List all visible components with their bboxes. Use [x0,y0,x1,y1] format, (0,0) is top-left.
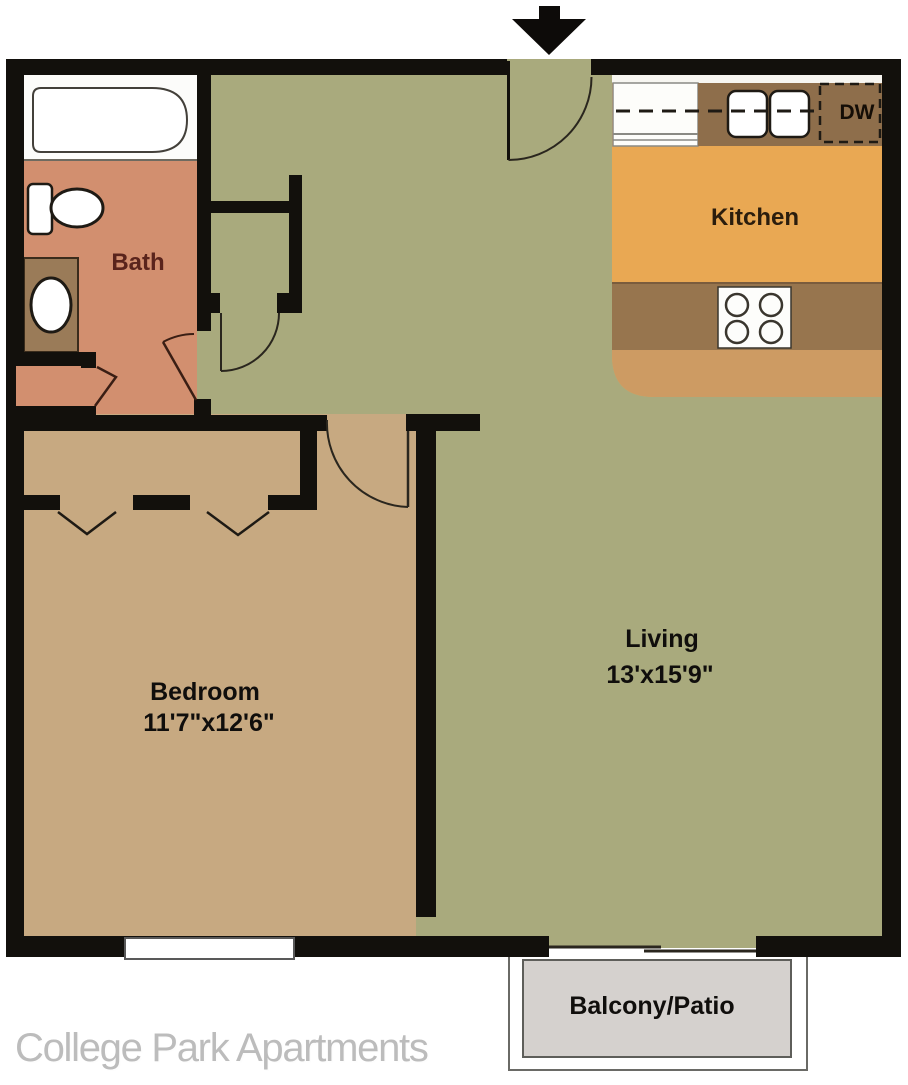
svg-text:Bath: Bath [111,249,164,276]
svg-text:Balcony/Patio: Balcony/Patio [569,992,734,1020]
svg-text:DW: DW [840,101,875,124]
svg-text:13'x15'9": 13'x15'9" [606,661,713,689]
svg-text:Kitchen: Kitchen [711,204,799,231]
svg-text:Living: Living [625,625,699,653]
svg-text:College Park Apartments: College Park Apartments [15,1026,428,1070]
svg-text:11'7"x12'6": 11'7"x12'6" [143,709,275,737]
svg-text:Bedroom: Bedroom [150,678,260,706]
